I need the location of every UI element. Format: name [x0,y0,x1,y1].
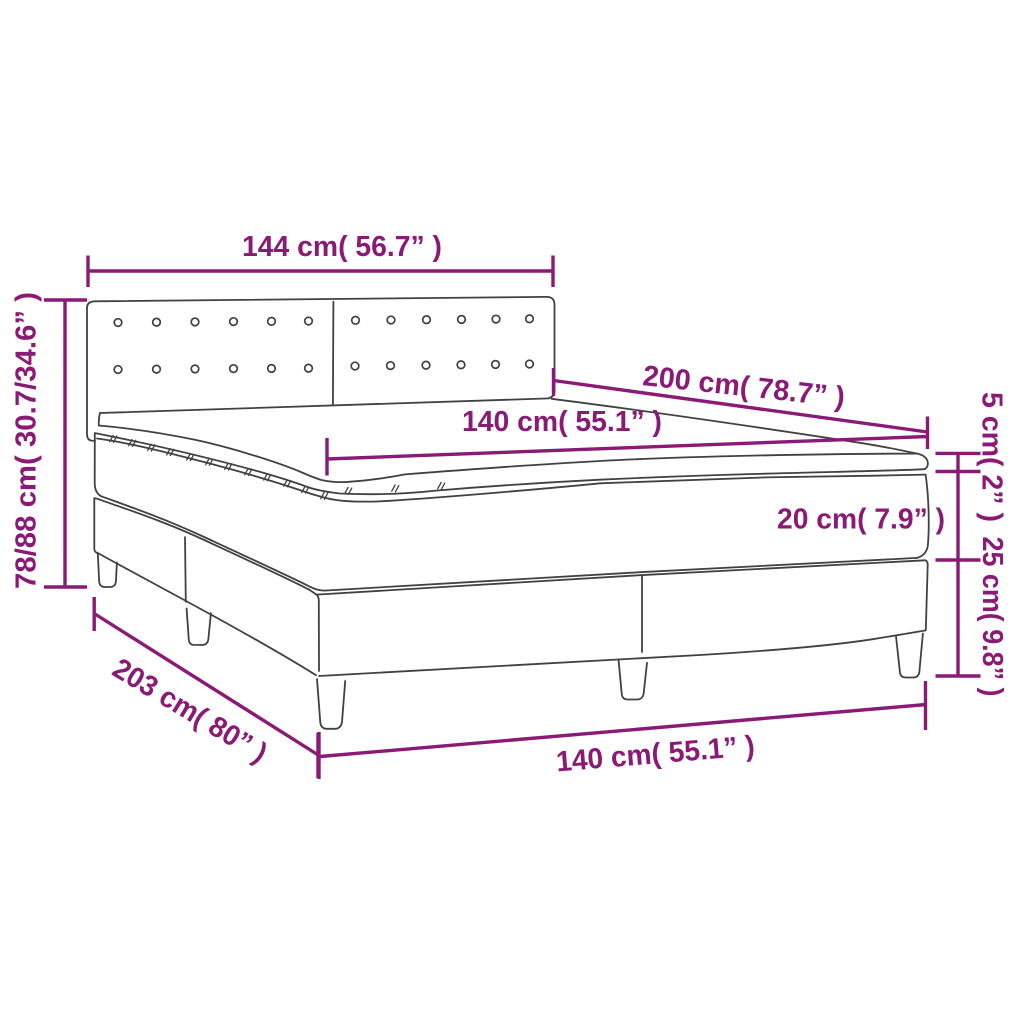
svg-text:144 cm( 56.7” ): 144 cm( 56.7” ) [242,231,442,263]
svg-text:78/88 cm( 30.7/34.6” ): 78/88 cm( 30.7/34.6” ) [11,292,43,589]
svg-text:20 cm( 7.9” ): 20 cm( 7.9” ) [777,504,945,536]
svg-text:25 cm( 9.8” ): 25 cm( 9.8” ) [976,537,1008,697]
svg-text:140 cm( 55.1” ): 140 cm( 55.1” ) [462,406,662,438]
svg-text:5 cm( 2” ): 5 cm( 2” ) [976,392,1008,522]
